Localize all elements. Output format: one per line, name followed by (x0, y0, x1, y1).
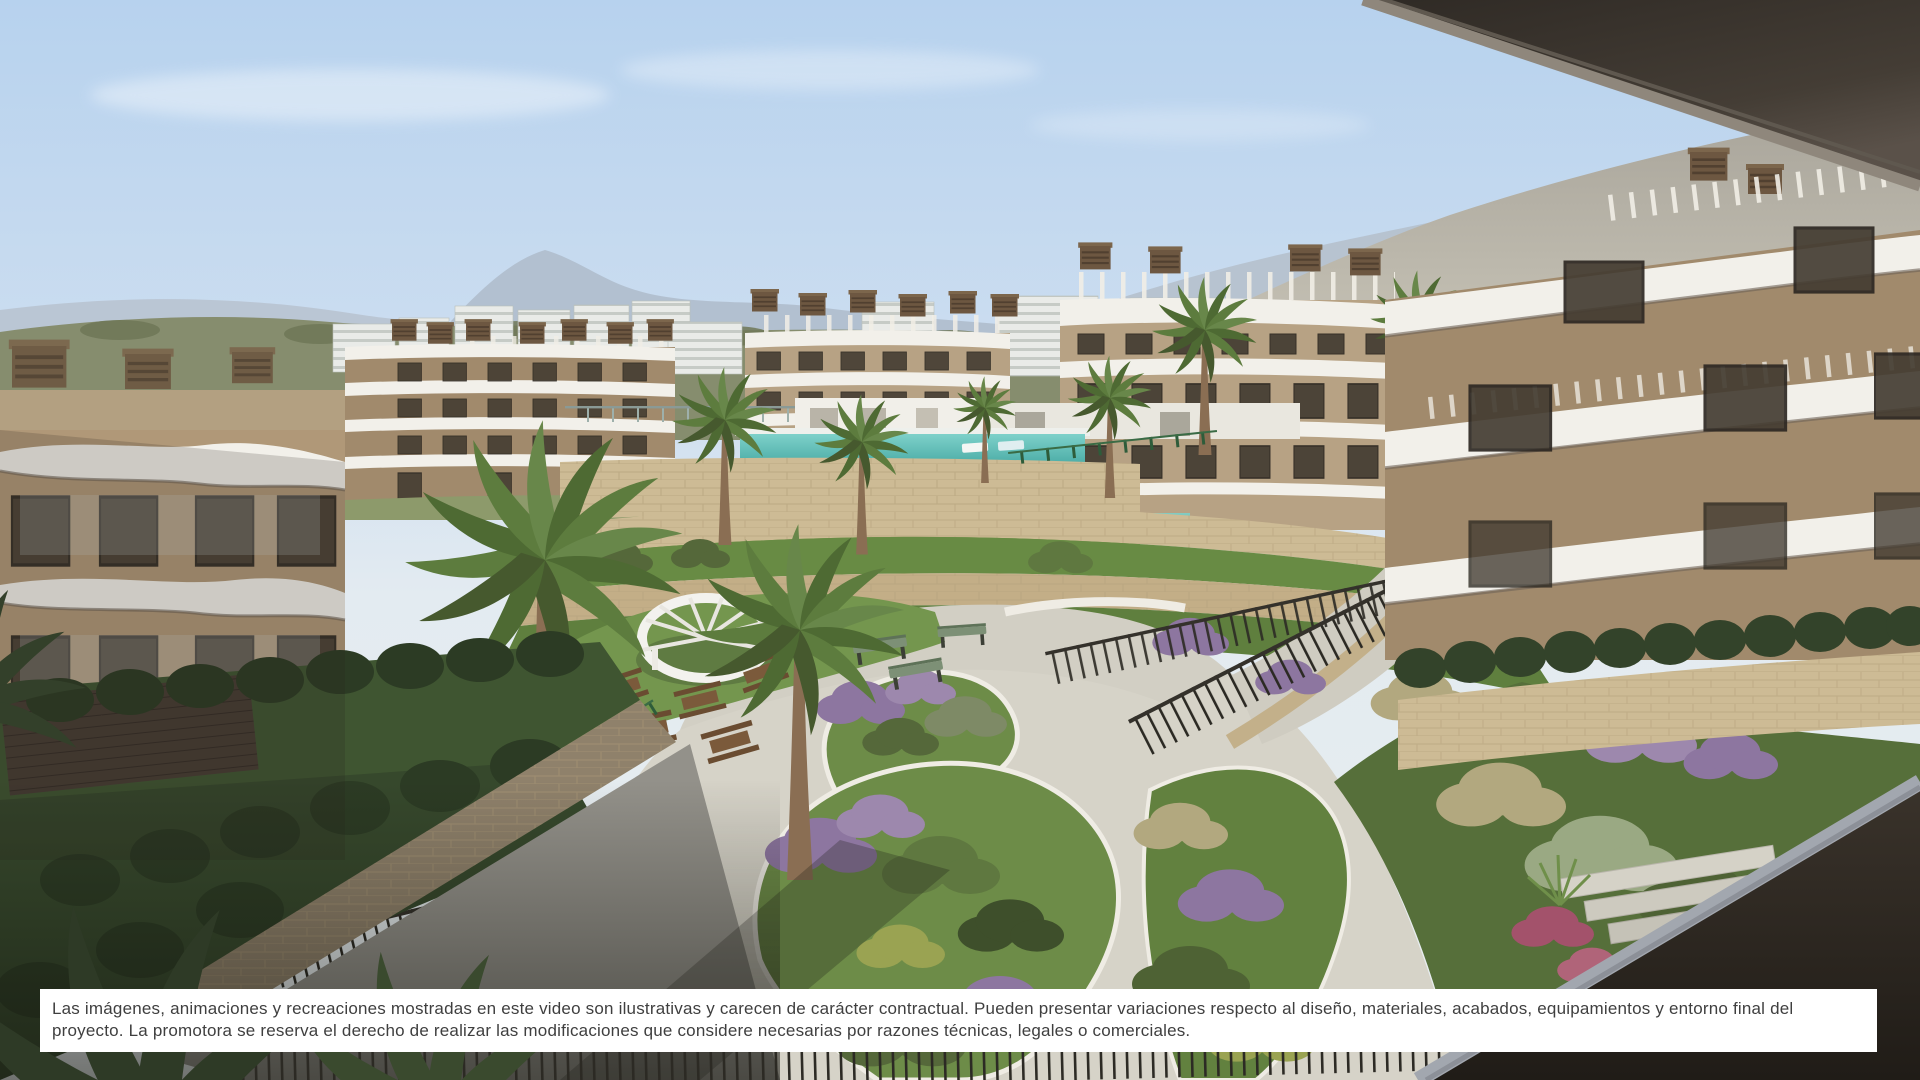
render-image: Las imágenes, animaciones y recreaciones… (0, 0, 1920, 1080)
disclaimer-box: Las imágenes, animaciones y recreaciones… (40, 989, 1877, 1052)
scene (0, 0, 1920, 1080)
disclaimer-line-1: Las imágenes, animaciones y recreaciones… (52, 998, 1865, 1020)
disclaimer-line-2: proyecto. La promotora se reserva el der… (52, 1020, 1865, 1042)
